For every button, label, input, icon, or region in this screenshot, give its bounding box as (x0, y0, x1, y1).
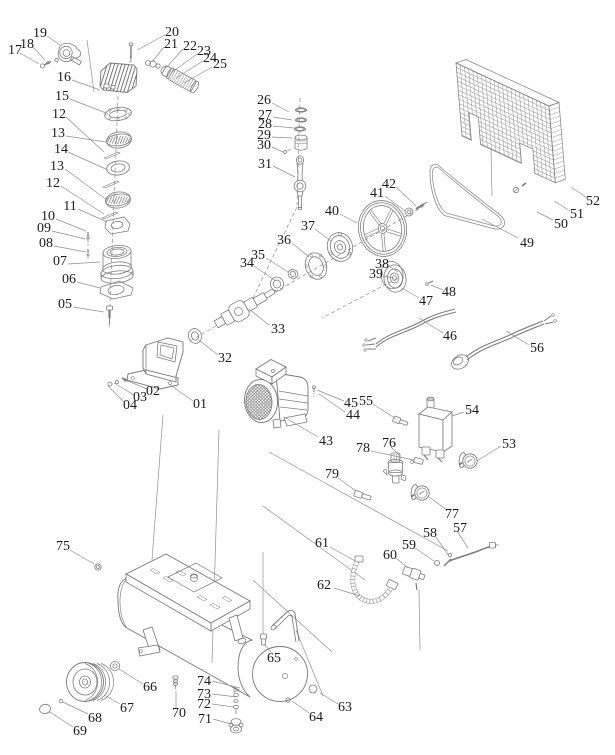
svg-text:62: 62 (317, 578, 331, 593)
svg-text:33: 33 (271, 322, 285, 337)
svg-text:39: 39 (369, 267, 383, 282)
svg-text:16: 16 (57, 70, 71, 85)
svg-text:08: 08 (39, 236, 53, 251)
svg-text:58: 58 (423, 526, 437, 541)
svg-text:56: 56 (530, 341, 544, 356)
svg-text:79: 79 (325, 467, 339, 482)
svg-text:06: 06 (62, 272, 76, 287)
svg-text:75: 75 (56, 539, 70, 554)
svg-text:42: 42 (382, 177, 396, 192)
svg-text:36: 36 (277, 233, 291, 248)
svg-text:01: 01 (193, 397, 207, 412)
svg-text:61: 61 (315, 536, 329, 551)
svg-text:51: 51 (570, 207, 584, 222)
svg-text:57: 57 (453, 521, 467, 536)
svg-text:11: 11 (63, 199, 76, 214)
svg-text:05: 05 (58, 297, 72, 312)
svg-text:73: 73 (197, 687, 211, 702)
svg-text:59: 59 (402, 538, 416, 553)
svg-text:60: 60 (383, 548, 397, 563)
svg-text:07: 07 (53, 254, 67, 269)
svg-text:02: 02 (146, 384, 160, 399)
svg-text:67: 67 (120, 701, 134, 716)
svg-text:32: 32 (218, 351, 232, 366)
svg-text:22: 22 (183, 39, 197, 54)
svg-text:30: 30 (257, 138, 271, 153)
svg-text:14: 14 (54, 142, 68, 157)
svg-text:18: 18 (20, 37, 34, 52)
svg-text:64: 64 (309, 710, 323, 725)
svg-text:43: 43 (319, 434, 333, 449)
svg-text:69: 69 (73, 724, 87, 739)
svg-text:13: 13 (50, 159, 64, 174)
svg-text:68: 68 (88, 711, 102, 726)
svg-text:48: 48 (442, 285, 456, 300)
svg-text:63: 63 (338, 700, 352, 715)
svg-text:31: 31 (258, 157, 272, 172)
svg-text:66: 66 (143, 680, 157, 695)
svg-text:54: 54 (465, 403, 479, 418)
svg-text:15: 15 (55, 89, 69, 104)
svg-text:78: 78 (356, 441, 370, 456)
svg-text:25: 25 (213, 57, 227, 72)
svg-text:76: 76 (382, 436, 396, 451)
svg-text:65: 65 (267, 651, 281, 666)
svg-text:74: 74 (197, 674, 211, 689)
svg-text:53: 53 (502, 437, 516, 452)
svg-text:71: 71 (198, 712, 212, 727)
svg-text:26: 26 (257, 93, 271, 108)
svg-text:04: 04 (123, 398, 137, 413)
svg-text:77: 77 (445, 507, 459, 522)
svg-text:49: 49 (520, 236, 534, 251)
svg-text:19: 19 (33, 26, 47, 41)
svg-text:70: 70 (172, 706, 186, 721)
svg-text:46: 46 (443, 329, 457, 344)
svg-text:13: 13 (51, 126, 65, 141)
svg-text:52: 52 (586, 194, 600, 209)
svg-text:10: 10 (41, 209, 55, 224)
svg-text:37: 37 (301, 219, 315, 234)
svg-text:40: 40 (325, 204, 339, 219)
svg-text:12: 12 (52, 107, 66, 122)
svg-text:55: 55 (359, 394, 373, 409)
svg-text:21: 21 (164, 37, 178, 52)
svg-text:12: 12 (46, 176, 60, 191)
svg-text:35: 35 (251, 248, 265, 263)
svg-text:50: 50 (554, 217, 568, 232)
svg-text:45: 45 (344, 396, 358, 411)
svg-text:47: 47 (419, 294, 433, 309)
